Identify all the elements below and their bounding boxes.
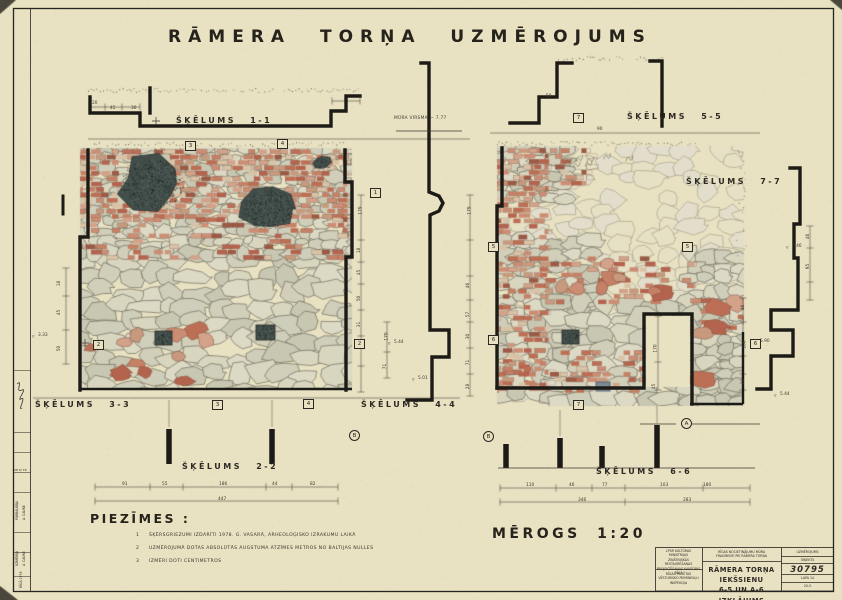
section-marker-3: 3	[212, 400, 223, 410]
letter-marker-B: B	[483, 431, 494, 442]
note-item: 2 UZMĒROJUMĀ DOTAS ABSOLŪTĀS AUGSTUMA AT…	[136, 545, 400, 552]
dim-label: 46	[466, 283, 471, 288]
dim-label: 110	[526, 483, 534, 488]
dim-label: 45	[652, 384, 657, 389]
note-number: 1	[136, 532, 149, 539]
section-marker-7: 7	[573, 113, 584, 123]
dim-label: 170	[654, 344, 659, 352]
margin-signature-text: PĀRBAUDĪJA	[15, 501, 19, 520]
dim-label: 6.46	[792, 244, 802, 249]
dim-label: 45	[357, 270, 362, 275]
dim-label: 77	[602, 483, 607, 488]
letter-marker-B: B	[349, 430, 360, 441]
section-marker-4: 4	[303, 399, 314, 409]
margin-signature-text: RĪGĀ 1978	[19, 572, 23, 588]
dim-label: 283	[683, 498, 691, 503]
section-marker-5: 5	[488, 242, 499, 252]
letter-marker-A: A	[681, 418, 692, 429]
dim-label: 28	[741, 379, 746, 384]
section-marker-1: 1	[370, 188, 381, 198]
titleblock-project: RĪGAS NOCIETINĀJUMU MŪRA FRAGMENTI PIE R…	[703, 550, 780, 559]
dim-label: 50	[57, 346, 62, 351]
drawing-sheet: RĀMERA TORŅA UZMĒROJUMS MŪRA VIRSMA — 7.…	[0, 0, 842, 600]
section-label-3-3: ŠĶĒLUMS 3-3	[35, 400, 131, 409]
dim-label: 45	[57, 310, 62, 315]
dim-label: 186	[219, 482, 227, 487]
elevation-mark-icon: ▿	[412, 377, 415, 383]
dim-label: 5.44	[394, 340, 404, 345]
dim-label: 46	[741, 305, 746, 310]
dim-label: 3.33	[38, 333, 48, 338]
dim-label: 5.44	[780, 392, 790, 397]
dim-label: 90	[597, 127, 602, 132]
section-label-4-4: ŠĶĒLUMS 4-4	[361, 400, 457, 409]
dim-label: 18	[57, 281, 62, 286]
section-label-5-5: ŠĶĒLUMS 5-5	[627, 112, 723, 121]
titleblock-object-label: OBJEKTS	[782, 558, 833, 562]
dim-label: 103	[660, 483, 668, 488]
elevation-note: MŪRA VIRSMA — 7.77	[394, 116, 447, 121]
margin-signature-text: UZMĒRĪJA	[15, 551, 19, 566]
dim-label: 180	[703, 483, 711, 488]
dim-label: 55	[162, 482, 167, 487]
dim-label: 71	[466, 360, 471, 365]
section-label-2-2: ŠĶĒLUMS 2-2	[182, 462, 278, 471]
dim-label: 30	[466, 334, 471, 339]
titleblock-org2: RĪGAS PILSĒTAS VĒSTURISKO PIEMINEKĻU INS…	[656, 572, 701, 585]
section-label-7-7: ŠĶĒLUMS 7-7	[686, 177, 782, 186]
dim-label: 18	[357, 248, 362, 253]
dim-label: 5.90	[760, 339, 770, 344]
dim-label: 45	[110, 106, 115, 111]
elevation-mark-icon: ▿	[32, 334, 35, 340]
dim-label: 447	[218, 497, 226, 502]
notes-block: PIEZĪMES : 1 ŠĶĒRSGRIEZUMI IZDARĪTI 1978…	[90, 511, 400, 565]
section-marker-7: 7	[573, 400, 584, 410]
note-text: IZMĒRI DOTI CENTIMETROS	[149, 558, 377, 565]
margin-signature-text: A. CAUNE	[22, 505, 26, 520]
section-marker-2: 2	[354, 339, 365, 349]
dim-label: 46	[569, 483, 574, 488]
notes-heading: PIEZĪMES :	[90, 511, 400, 526]
note-item: 1 ŠĶĒRSGRIEZUMI IZDARĪTI 1978. G. VASARĀ…	[136, 532, 400, 539]
note-text: UZMĒROJUMĀ DOTAS ABSOLŪTĀS AUGSTUMA ATZĪ…	[149, 545, 377, 552]
section-marker-6: 6	[488, 335, 499, 345]
dim-label: 346	[578, 498, 586, 503]
dim-label: 179	[468, 206, 473, 214]
titleblock-code: 20-5	[782, 584, 833, 588]
elevation-mark-icon: ▿	[774, 393, 777, 399]
titleblock-sheet-title: RĀMERA TORŅA IEKŠSIENU 6-5 UN A-6 IZKLĀJ…	[703, 565, 780, 600]
dim-label: 28	[466, 384, 471, 389]
dim-label: 44	[272, 482, 277, 487]
section-label-6-6: ŠĶĒLUMS 6-6	[596, 467, 692, 476]
section-marker-4: 4	[277, 139, 288, 149]
note-number: 3	[136, 558, 149, 565]
dim-label: 100	[743, 340, 748, 348]
dim-label: 82	[310, 482, 315, 487]
note-text: ŠĶĒRSGRIEZUMI IZDARĪTI 1978. G. VASARĀ, …	[149, 532, 377, 539]
scale-label: MĒROGS 1:20	[492, 526, 646, 542]
note-number: 2	[136, 545, 149, 552]
dim-label: 46	[806, 234, 811, 239]
dim-label: 57	[466, 312, 471, 317]
dim-label: 50	[357, 296, 362, 301]
text-layer: RĀMERA TORŅA UZMĒROJUMS MŪRA VIRSMA — 7.…	[0, 0, 842, 600]
margin-date: 28 IV 78	[14, 468, 26, 472]
dim-label: 31	[357, 322, 362, 327]
section-marker-2: 2	[93, 340, 104, 350]
titleblock-doc-type: UZMĒROJUMS	[782, 550, 833, 554]
elevation-mark-icon: ▿	[786, 245, 789, 251]
note-item: 3 IZMĒRI DOTI CENTIMETROS	[136, 558, 400, 565]
section-marker-6: 6	[750, 339, 761, 349]
dim-label: 30	[131, 106, 136, 111]
dim-label: 5.01	[418, 376, 428, 381]
dim-label: 95	[806, 264, 811, 269]
dim-label: 91	[122, 482, 127, 487]
section-marker-5: 5	[682, 242, 693, 252]
titleblock-sheet-number: LAPA 14	[782, 576, 833, 580]
dim-label: 50	[546, 94, 551, 99]
page-title: RĀMERA TORŅA UZMĒROJUMS	[140, 27, 680, 47]
dim-label: 179	[359, 206, 364, 214]
dim-label: 71	[383, 364, 388, 369]
margin-signature-text: A. CAUNE	[22, 551, 26, 566]
elevation-mark-icon: ▿	[388, 341, 391, 347]
dim-label: 20	[92, 101, 97, 106]
section-marker-3: 3	[185, 141, 196, 151]
dim-label: 170	[385, 332, 390, 340]
section-label-1-1: ŠĶĒLUMS 1-1	[176, 116, 272, 125]
